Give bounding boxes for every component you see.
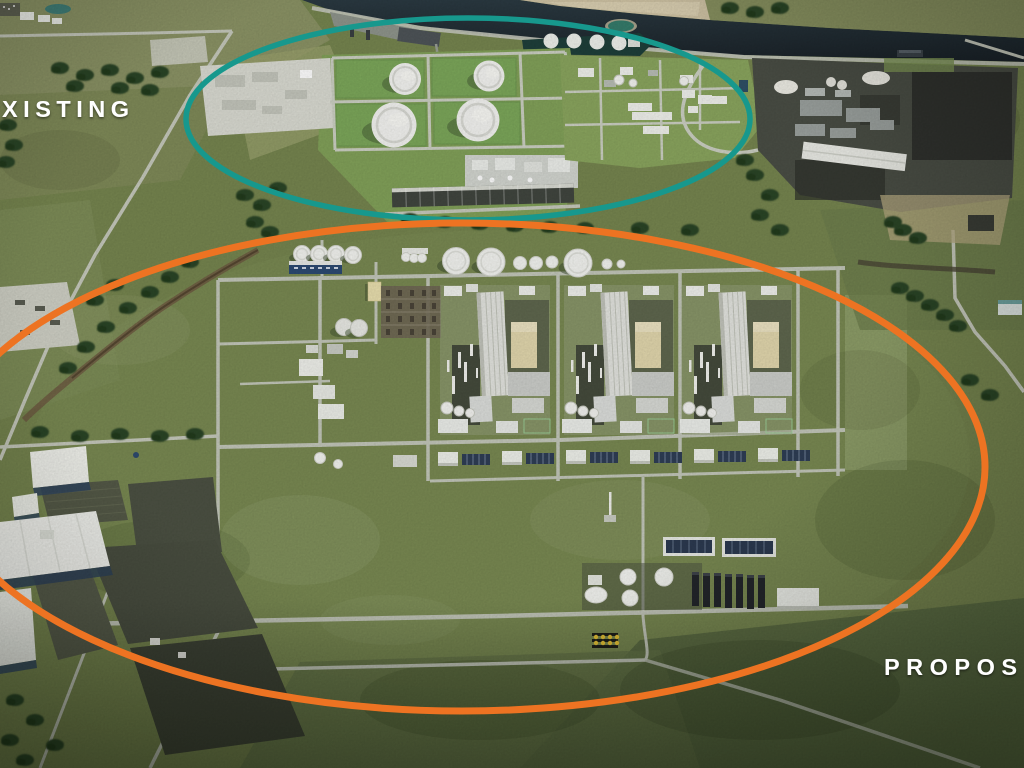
existing-label: XISTING (2, 96, 135, 122)
photo-grain (0, 0, 1024, 768)
slide-aerial-annotated: XISTING PROPOS (0, 0, 1024, 768)
aerial-site-photo: XISTING PROPOS (0, 0, 1024, 768)
proposed-label: PROPOS (884, 654, 1024, 680)
